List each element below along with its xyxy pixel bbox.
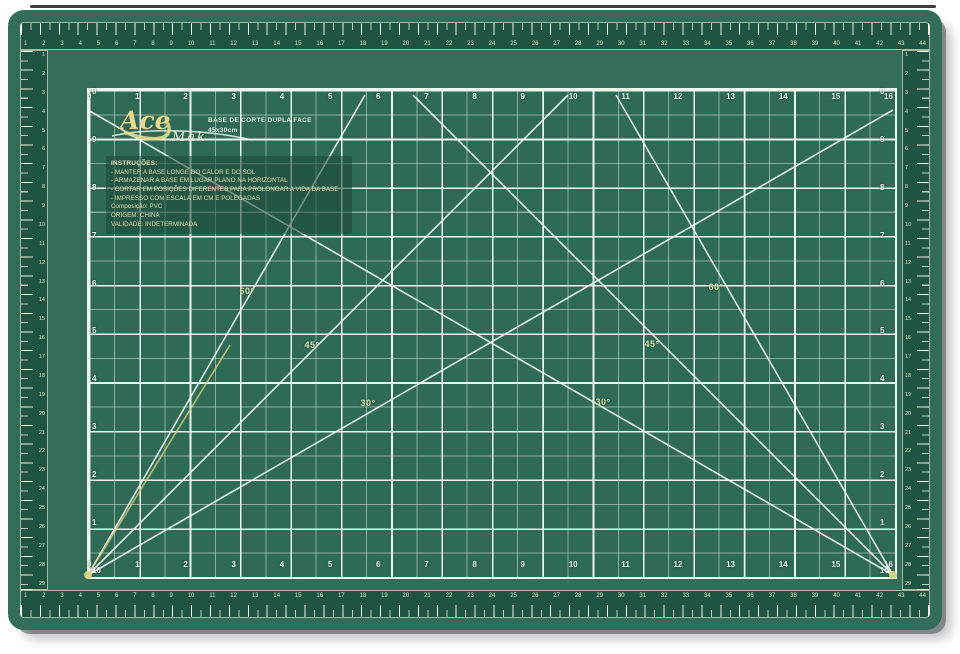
angle-label-60-right: 60° [708,282,723,292]
corner-convergence-mark-right [889,571,897,579]
brand-name-sub: Mak [172,130,207,145]
instructions-heading: INSTRUÇÕES: [111,160,347,169]
diagonal-60-right [616,95,893,575]
angle-label-60-left: 60° [239,286,254,296]
product-title-line1: BASE DE CORTE DUPLA FACE [208,116,312,126]
angle-label-30-right: 30° [595,397,610,407]
instruction-line: - CORTAR EM POSIÇÕES DIFERENTES PARA PRO… [111,186,347,195]
angle-label-45-left: 45° [304,340,319,350]
instruction-line: - MANTER A BASE LONGE DO CALOR E DO SOL [111,169,347,178]
product-title: BASE DE CORTE DUPLA FACE 45x30cm [208,116,312,136]
cutting-mat: 1234567891011121314151617181920212223242… [8,10,942,630]
product-title-line2: 45x30cm [208,126,312,136]
diagonal-yellow-accent [88,345,230,575]
angle-lines [8,10,942,630]
photo-edge-shadow [30,5,936,8]
instruction-line: ORIGEM: CHINA [111,212,347,221]
instruction-line: - ARMAZENAR A BASE EM LUGAR PLANO NA HOR… [111,177,347,186]
diagonal-45-right [413,95,893,575]
brand-name-script: Ace [120,106,171,135]
instructions-lines: - MANTER A BASE LONGE DO CALOR E DO SOL-… [111,169,347,230]
page: { "product": { "brand_script": "Ace", "b… [0,0,960,654]
angle-label-30-left: 30° [360,398,375,408]
instruction-line: VALIDADE: INDETERMINADA [111,221,347,230]
corner-convergence-mark-left [84,571,92,579]
instruction-line: Composição: PVC [111,203,347,212]
angle-label-45-right: 45° [644,339,659,349]
instructions-block: INSTRUÇÕES: - MANTER A BASE LONGE DO CAL… [106,156,352,234]
instruction-line: - IMPRESSO COM ESCALA EM CM E POLEGADAS [111,195,347,204]
